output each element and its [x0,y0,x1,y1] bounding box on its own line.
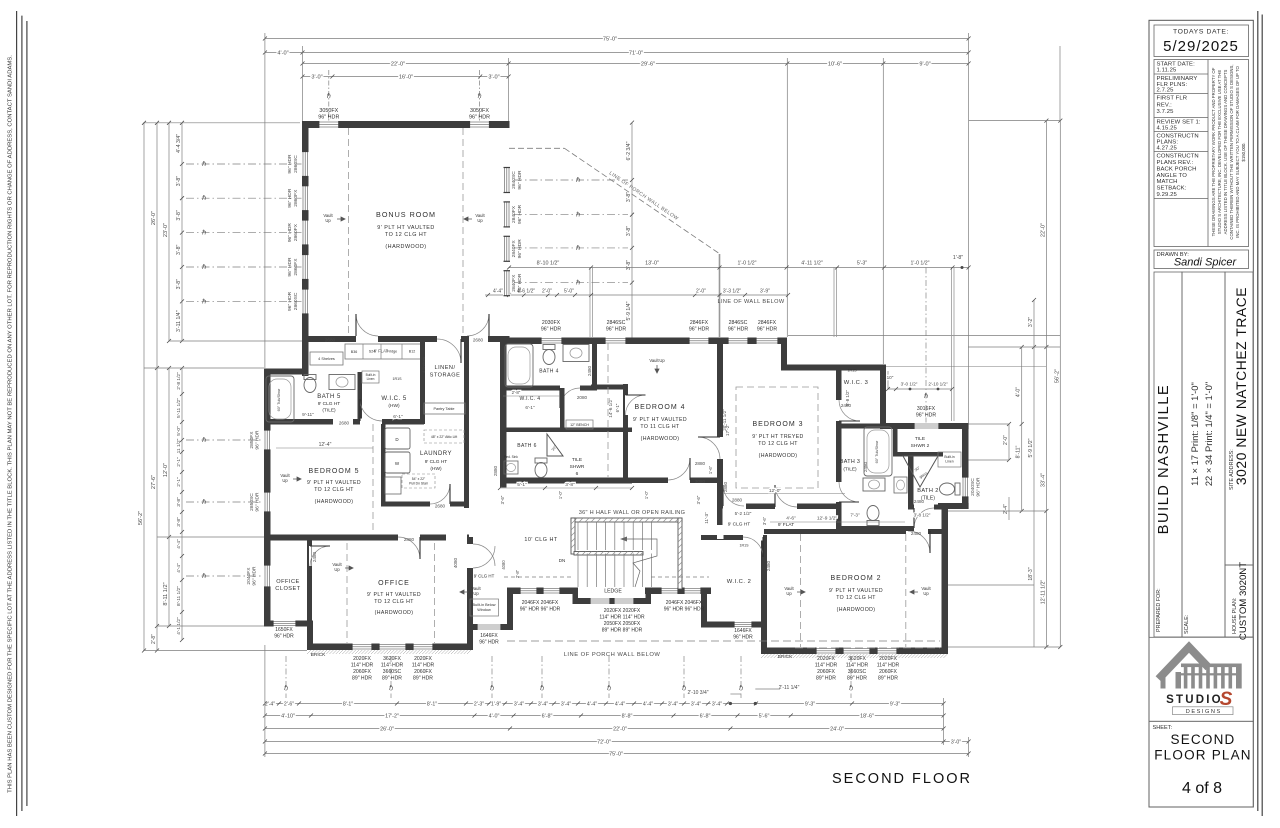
svg-text:Linen: Linen [367,377,375,381]
svg-text:114" HDR 114" HDR: 114" HDR 114" HDR [599,615,645,621]
svg-text:BUILD NASHVILLE: BUILD NASHVILLE [1156,384,1172,535]
svg-text:3050FX: 3050FX [470,108,489,114]
svg-text:Sandi Spicer: Sandi Spicer [1174,257,1238,269]
svg-text:26'-0": 26'-0" [151,211,157,225]
svg-text:5'-3": 5'-3" [857,261,867,267]
svg-text:2'-1": 2'-1" [176,477,182,487]
svg-text:2860SC: 2860SC [293,155,299,173]
svg-text:BATH 2: BATH 2 [917,488,939,494]
svg-text:2480: 2480 [587,365,592,376]
svg-text:3'-0": 3'-0" [311,75,322,81]
svg-text:96" HDR: 96" HDR [287,223,293,243]
svg-text:Pull Dn Stair: Pull Dn Stair [409,482,429,486]
svg-text:89" HDR: 89" HDR [352,676,372,682]
svg-text:3080: 3080 [695,479,706,484]
svg-text:96" HDR: 96" HDR [606,327,627,333]
svg-text:96" HDR: 96" HDR [541,327,562,333]
svg-text:48" x 22" Attic Lift: 48" x 22" Attic Lift [431,435,457,439]
svg-text:2680: 2680 [435,504,446,509]
svg-text:96" HDR: 96" HDR [287,188,293,208]
svg-text:TO 12 CLG HT: TO 12 CLG HT [314,487,354,493]
svg-text:8'-11 1/2": 8'-11 1/2" [176,586,182,606]
svg-text:2'-3": 2'-3" [474,702,484,708]
svg-text:2'-8 1/2": 2'-8 1/2" [176,372,182,390]
svg-text:12" BENCH: 12" BENCH [570,423,589,427]
svg-text:29'-6": 29'-6" [641,62,655,68]
svg-text:BATH 5: BATH 5 [317,394,341,400]
svg-text:2480: 2480 [766,560,771,571]
svg-text:114" HDR: 114" HDR [815,663,838,669]
svg-text:2020FX: 2020FX [879,656,897,662]
svg-text:2480: 2480 [863,461,868,472]
svg-text:96" HDR: 96" HDR [274,634,294,640]
svg-text:3620FX: 3620FX [848,656,866,662]
svg-text:2480: 2480 [841,403,852,408]
svg-text:8'-11 1/2": 8'-11 1/2" [163,582,169,605]
svg-text:4'-11 1/2": 4'-11 1/2" [801,261,823,267]
svg-text:2040FX: 2040FX [246,567,252,585]
svg-text:2840SC: 2840SC [511,171,517,189]
svg-text:3'-4": 3'-4" [668,702,678,708]
svg-text:2'-6": 2'-6" [284,702,294,708]
svg-text:BATH 4: BATH 4 [539,369,559,375]
svg-text:6'-2 3/4": 6'-2 3/4" [626,141,632,160]
svg-text:2846FX: 2846FX [690,320,709,326]
svg-text:89" HDR: 89" HDR [413,676,433,682]
svg-text:(HARDWOOD): (HARDWOOD) [385,244,426,250]
svg-text:2850FX: 2850FX [249,431,255,449]
svg-text:(TILE): (TILE) [322,408,336,414]
svg-text:72'-0": 72'-0" [597,740,611,746]
svg-text:3'-8": 3'-8" [176,517,182,527]
svg-text:9.29.25: 9.29.25 [1157,192,1178,198]
svg-text:TO 12 CLG HT: TO 12 CLG HT [385,232,427,238]
svg-text:2080: 2080 [577,395,588,400]
svg-text:BEDROOM 2: BEDROOM 2 [830,575,881,582]
svg-text:9'-11": 9'-11" [302,412,314,418]
svg-text:22 × 34 Print: 1/4" = 1'-0": 22 × 34 Print: 1/4" = 1'-0" [1203,382,1214,486]
svg-text:PLANS REV.:: PLANS REV.: [1157,160,1194,166]
svg-text:96" HDR: 96" HDR [287,291,293,311]
svg-text:2020FX: 2020FX [353,656,371,662]
svg-text:4.27.25: 4.27.25 [1157,145,1178,151]
svg-text:ANGLE TO: ANGLE TO [1157,173,1188,179]
svg-text:MATCH: MATCH [1157,179,1178,185]
svg-text:1R1S: 1R1S [393,377,403,381]
svg-text:114" HDR: 114" HDR [846,663,869,669]
svg-text:12'-9 1/2": 12'-9 1/2" [817,516,838,522]
svg-text:2846SC: 2846SC [729,320,748,326]
svg-text:96" HDR: 96" HDR [318,115,339,121]
svg-text:4080: 4080 [501,560,506,570]
svg-text:96" HDR: 96" HDR [255,492,261,512]
svg-text:20'-11 1/2": 20'-11 1/2" [722,409,727,431]
svg-text:Up: Up [659,358,665,363]
svg-text:4'-4": 4'-4" [643,702,653,708]
svg-text:2840FX: 2840FX [511,274,517,292]
svg-text:5'-0": 5'-0" [564,289,574,295]
svg-text:OFFICE: OFFICE [276,579,300,585]
svg-text:SHWR 2: SHWR 2 [911,443,930,449]
svg-text:LINE OF PORCH WALL BELOW: LINE OF PORCH WALL BELOW [564,652,661,658]
svg-text:BACK PORCH: BACK PORCH [1157,166,1197,172]
svg-text:Ped. Sink: Ped. Sink [504,455,518,459]
svg-text:Fridge: Fridge [387,350,397,354]
svg-text:12'-0": 12'-0" [769,488,782,494]
svg-text:89" HDR: 89" HDR [382,676,402,682]
svg-text:9' PLT HT VAULTED: 9' PLT HT VAULTED [367,592,421,598]
svg-text:9'-3": 9'-3" [805,702,815,708]
svg-text:2020FX 2020FX: 2020FX 2020FX [604,608,641,614]
svg-text:1'-8": 1'-8" [953,255,963,261]
svg-text:1'-0": 1'-0" [558,490,563,499]
svg-text:TO 12 CLG HT: TO 12 CLG HT [374,599,414,605]
svg-text:4'-6": 4'-6" [786,516,796,522]
svg-text:3016FX: 3016FX [917,406,936,412]
svg-text:Up: Up [786,591,792,596]
svg-text:12'-0": 12'-0" [163,463,169,477]
svg-text:FIRST FLR: FIRST FLR [1157,96,1188,102]
svg-text:3'-0": 3'-0" [488,75,499,81]
svg-text:Up: Up [923,591,929,596]
svg-text:14'-6 1/2": 14'-6 1/2" [608,398,613,418]
svg-text:5'-0": 5'-0" [176,426,182,436]
svg-text:SHWR: SHWR [570,464,585,470]
svg-text:9'-0": 9'-0" [919,62,930,68]
svg-text:LEDGE: LEDGE [604,589,622,595]
svg-text:SECOND: SECOND [1171,732,1236,747]
svg-text:2850SC: 2850SC [249,493,255,511]
svg-text:1'-6": 1'-6" [708,465,713,474]
svg-text:REV.:: REV.: [1157,102,1173,108]
svg-text:23'-0": 23'-0" [163,223,169,237]
svg-text:SECOND FLOOR: SECOND FLOOR [832,771,972,787]
svg-text:2846FX: 2846FX [758,320,777,326]
svg-text:3'-4": 3'-4" [712,702,722,708]
svg-text:3'-0 1/2": 3'-0 1/2" [901,382,918,387]
svg-text:6'-8": 6'-8" [700,714,711,720]
svg-text:ADDRESS LISTED IN TITLE BLOCK.: ADDRESS LISTED IN TITLE BLOCK. USE OF TH… [1223,70,1228,235]
svg-text:56'-2": 56'-2" [138,511,144,525]
svg-text:(HARDWOOD): (HARDWOOD) [375,610,414,616]
svg-text:TO 12 CLG HT: TO 12 CLG HT [836,595,876,601]
svg-text:114" HDR: 114" HDR [877,663,900,669]
svg-text:2'-4": 2'-4" [1003,504,1009,514]
svg-text:96" HDR: 96" HDR [469,115,490,121]
svg-text:(HARDWOOD): (HARDWOOD) [837,607,876,613]
svg-text:2860FX: 2860FX [293,223,299,241]
svg-text:8'-8": 8'-8" [622,714,633,720]
svg-text:9' CLG HT: 9' CLG HT [728,522,751,528]
svg-text:71'-0": 71'-0" [629,51,643,57]
svg-text:2840FX: 2840FX [511,205,517,223]
svg-text:2880: 2880 [493,465,498,476]
svg-text:TO 11 CLG HT: TO 11 CLG HT [640,424,680,430]
svg-text:9' PLT HT VAULTED: 9' PLT HT VAULTED [377,225,435,231]
svg-text:3'-8": 3'-8" [626,192,632,202]
svg-text:B36: B36 [351,350,357,354]
svg-text:4'-4": 4'-4" [615,702,625,708]
svg-text:4 Shelves: 4 Shelves [422,357,426,373]
svg-text:THESE DRAWINGS ARE THE PROPRIE: THESE DRAWINGS ARE THE PROPRIETARY WORK … [1211,67,1216,236]
svg-text:18'-6": 18'-6" [860,714,874,720]
svg-text:(HARDWOOD): (HARDWOOD) [759,453,798,459]
svg-text:5'-1": 5'-1" [517,482,527,488]
svg-text:22'-0": 22'-0" [391,62,405,68]
svg-text:89" HDR: 89" HDR [847,676,867,682]
svg-text:(HARDWOOD): (HARDWOOD) [315,499,354,505]
svg-text:60" Tub/Shwr: 60" Tub/Shwr [875,440,879,463]
svg-text:27'-6": 27'-6" [151,475,157,489]
svg-text:Up: Up [477,218,483,223]
svg-text:2880: 2880 [695,461,706,466]
svg-text:4'-4": 4'-4" [587,702,597,708]
svg-text:STORAGE: STORAGE [430,373,461,379]
svg-text:4'-4": 4'-4" [493,289,503,295]
svg-text:5'-9 1/2": 5'-9 1/2" [1028,438,1034,457]
svg-text:2480: 2480 [914,499,925,504]
svg-text:3'-4": 3'-4" [691,702,701,708]
svg-text:3620FX: 3620FX [383,656,401,662]
svg-text:2860FX: 2860FX [293,258,299,276]
svg-text:13'-0": 13'-0" [645,261,659,267]
svg-text:4 Shelves: 4 Shelves [318,357,335,361]
svg-text:3'-8": 3'-8" [565,482,575,488]
svg-text:3020 NEW NATCHEZ TRACE: 3020 NEW NATCHEZ TRACE [1234,287,1249,485]
svg-text:3'-0": 3'-0" [951,740,961,746]
svg-text:96" HDR: 96" HDR [976,477,982,497]
svg-text:2846SC: 2846SC [607,320,626,326]
svg-text:CLOSET: CLOSET [275,586,300,592]
svg-text:114" HDR: 114" HDR [381,663,404,669]
svg-text:3'-6": 3'-6" [762,516,767,525]
svg-text:96" HDR: 96" HDR [287,257,293,277]
svg-text:Up: Up [334,567,340,572]
svg-text:3'-4": 3'-4" [561,702,571,708]
svg-text:2860FX: 2860FX [293,189,299,207]
svg-text:1646FX: 1646FX [480,633,498,639]
svg-text:2060FX: 2060FX [817,669,835,675]
svg-text:$150,000.: $150,000. [1241,142,1246,161]
svg-text:1R1S: 1R1S [740,544,750,548]
svg-text:9' PLT HT VAULTED: 9' PLT HT VAULTED [633,417,687,423]
svg-text:3.7.25: 3.7.25 [1157,109,1175,115]
svg-text:3'-8": 3'-8" [626,260,632,270]
svg-text:BEDROOM 4: BEDROOM 4 [634,404,685,411]
svg-text:3'-6": 3'-6" [696,495,701,504]
svg-text:2680: 2680 [473,338,484,343]
svg-text:4080: 4080 [453,557,458,568]
svg-text:75'-0": 75'-0" [603,37,617,43]
svg-text:TILE: TILE [915,436,925,442]
svg-text:2680: 2680 [325,338,336,343]
svg-text:2480: 2480 [911,531,922,536]
svg-text:W.I.C. 4: W.I.C. 4 [520,396,541,402]
svg-text:LINEN/: LINEN/ [434,365,455,371]
svg-text:2'-0": 2'-0" [696,289,706,295]
svg-text:1'-0": 1'-0" [644,490,649,499]
svg-text:BEDROOM 3: BEDROOM 3 [752,421,803,428]
svg-text:8'-1": 8'-1" [343,702,353,708]
svg-text:22'-0": 22'-0" [1040,223,1046,237]
svg-text:Pantry Table: Pantry Table [433,407,454,411]
svg-text:CUSTOM 3020NT: CUSTOM 3020NT [1238,562,1249,640]
svg-text:1646FX: 1646FX [734,628,752,634]
svg-text:2050FX 2050FX: 2050FX 2050FX [604,621,641,627]
svg-text:Window: Window [477,608,491,612]
svg-text:(HW): (HW) [388,403,400,409]
svg-text:2020FX: 2020FX [414,656,432,662]
svg-text:3'-4": 3'-4" [514,702,524,708]
svg-text:2680: 2680 [339,421,350,426]
svg-text:3'-4": 3'-4" [538,702,548,708]
svg-text:2880: 2880 [404,537,415,542]
svg-text:16'-0": 16'-0" [399,75,413,81]
svg-text:11 1/2": 11 1/2" [176,438,182,453]
svg-text:96" HDR: 96" HDR [757,327,778,333]
svg-text:4 of 8: 4 of 8 [1182,780,1222,797]
svg-text:SCALE:: SCALE: [1184,615,1190,634]
svg-text:96" HDR: 96" HDR [479,640,499,646]
svg-text:Up: Up [325,218,331,223]
svg-text:LINE OF WALL BELOW: LINE OF WALL BELOW [717,299,784,305]
svg-text:96" HDR 96" HDR: 96" HDR 96" HDR [520,607,561,613]
svg-text:Vault: Vault [649,358,659,363]
svg-text:22'-0": 22'-0" [613,727,627,733]
svg-text:89" HDR 89" HDR: 89" HDR 89" HDR [602,628,643,634]
svg-text:2'-8": 2'-8" [512,390,521,395]
svg-text:11'-3": 11'-3" [704,512,709,524]
svg-text:96" HDR: 96" HDR [517,204,523,224]
svg-text:STUDIO: STUDIO [1166,694,1223,706]
svg-text:96" HDR: 96" HDR [517,170,523,190]
svg-text:89" HDR: 89" HDR [816,676,836,682]
svg-text:(HW): (HW) [430,466,442,472]
svg-text:12'-11 1/2": 12'-11 1/2" [1040,580,1046,605]
svg-text:W.I.C. 2: W.I.C. 2 [727,579,752,585]
svg-text:33'-4": 33'-4" [1040,473,1046,487]
svg-text:114" HDR: 114" HDR [412,663,435,669]
svg-text:3'-8": 3'-8" [176,497,182,507]
svg-text:96" HDR: 96" HDR [916,413,937,419]
svg-text:4'-4 3/4": 4'-4 3/4" [176,134,182,153]
svg-text:2046FX 2046FX: 2046FX 2046FX [666,600,703,606]
svg-text:96" HDR: 96" HDR [517,273,523,293]
svg-text:2030FX: 2030FX [542,320,561,326]
svg-text:D E S I G N S: D E S I G N S [1186,709,1221,715]
svg-text:3660SC: 3660SC [383,669,402,675]
svg-text:Up: Up [473,591,479,596]
svg-text:96" HDR: 96" HDR [287,154,293,174]
svg-text:18'-3": 18'-3" [1028,567,1034,580]
svg-text:Up: Up [282,478,288,483]
svg-text:114" HDR: 114" HDR [351,663,374,669]
svg-text:INC. IS PROHIBITED AND MAY SUB: INC. IS PROHIBITED AND MAY SUBJECT YOU T… [1235,66,1240,238]
svg-text:8'-11": 8'-11" [1016,445,1022,458]
svg-text:2046FX 2046FX: 2046FX 2046FX [522,600,559,606]
svg-text:2060FX: 2060FX [414,669,432,675]
svg-text:54" x 22": 54" x 22" [412,477,426,481]
svg-text:9' FLAT: 9' FLAT [374,349,389,354]
svg-text:3'-8 1/2": 3'-8 1/2" [914,513,931,518]
svg-text:Built-in Below: Built-in Below [472,603,495,607]
svg-text:2.7.25: 2.7.25 [1157,88,1175,94]
svg-text:STUDIO S ARCHITECTURE, INC. DE: STUDIO S ARCHITECTURE, INC. DEVELOPED FO… [1217,70,1222,235]
svg-text:(HARDWOOD): (HARDWOOD) [641,436,680,442]
svg-text:Built-in: Built-in [944,455,954,459]
svg-text:9' PLT HT VAULTED: 9' PLT HT VAULTED [307,480,361,486]
svg-text:60" Tub/Shwr: 60" Tub/Shwr [277,388,281,411]
svg-text:3'-3 1/2": 3'-3 1/2" [723,289,742,295]
svg-text:3050FX: 3050FX [319,108,338,114]
svg-text:3'-8": 3'-8" [176,279,182,289]
svg-text:6: 6 [576,471,579,477]
svg-text:9' CLG HT: 9' CLG HT [318,401,341,407]
svg-text:2880: 2880 [723,481,728,492]
svg-text:5/29/2025: 5/29/2025 [1163,38,1239,55]
svg-text:96" HDR: 96" HDR [728,327,749,333]
svg-text:3'-11 1/4": 3'-11 1/4" [176,310,182,332]
svg-text:10": 10" [887,375,894,380]
svg-text:5'-9 1/4": 5'-9 1/4" [626,301,632,320]
svg-text:2'-10 3/4": 2'-10 3/4" [687,690,708,696]
svg-text:8'-10 1/2": 8'-10 1/2" [537,261,560,267]
svg-text:17'-2": 17'-2" [385,714,399,720]
svg-text:3'-6": 3'-6" [500,495,505,504]
svg-text:DN: DN [559,558,566,563]
svg-text:4'-4": 4'-4" [176,539,182,549]
svg-text:96" HDR: 96" HDR [255,430,261,450]
svg-text:9' CLG HT: 9' CLG HT [425,459,448,465]
svg-text:5'-2 1/2": 5'-2 1/2" [735,511,752,516]
svg-text:3'-2": 3'-2" [1028,317,1034,327]
svg-text:5'-6": 5'-6" [759,714,770,720]
svg-text:9'-3": 9'-3" [890,702,900,708]
svg-text:1650FX: 1650FX [275,627,293,633]
svg-text:5'-11 1/2": 5'-11 1/2" [176,398,182,418]
svg-text:BATH 6: BATH 6 [517,443,537,449]
svg-text:6'-1": 6'-1" [393,414,403,420]
svg-text:1.11.25: 1.11.25 [1157,68,1178,74]
svg-text:6'-1": 6'-1" [615,403,620,412]
svg-text:24'-0": 24'-0" [830,727,844,733]
svg-text:2'-0": 2'-0" [1003,435,1009,445]
svg-text:9' FLAT: 9' FLAT [778,522,794,528]
svg-text:BEDROOM 5: BEDROOM 5 [308,468,359,475]
svg-text:2'-0": 2'-0" [542,289,552,295]
svg-text:BONUS ROOM: BONUS ROOM [376,210,436,219]
svg-text:2060FX: 2060FX [353,669,371,675]
svg-text:4'-4": 4'-4" [176,563,182,573]
svg-text:(TILE): (TILE) [843,467,857,473]
svg-text:SHEET:: SHEET: [1153,725,1173,731]
svg-text:LAUNDRY: LAUNDRY [420,451,452,457]
svg-text:10'-6": 10'-6" [828,62,842,68]
svg-text:FLOOR PLAN: FLOOR PLAN [1154,748,1252,763]
svg-text:2860SC: 2860SC [293,292,299,310]
svg-text:2'-11 1/4": 2'-11 1/4" [779,685,800,691]
svg-text:75'-0": 75'-0" [609,752,623,758]
svg-text:B12: B12 [409,350,415,354]
svg-text:2'-8": 2'-8" [151,634,157,644]
svg-text:1'-0 1/2": 1'-0 1/2" [911,261,930,267]
svg-text:1'-0 1/2": 1'-0 1/2" [738,261,757,267]
svg-text:56'-2": 56'-2" [1054,369,1060,383]
svg-text:89" HDR: 89" HDR [878,676,898,682]
svg-text:9' PLT HT TREYED: 9' PLT HT TREYED [752,434,803,440]
svg-text:2'-8": 2'-8" [515,569,520,578]
svg-text:3'-8": 3'-8" [176,244,182,254]
